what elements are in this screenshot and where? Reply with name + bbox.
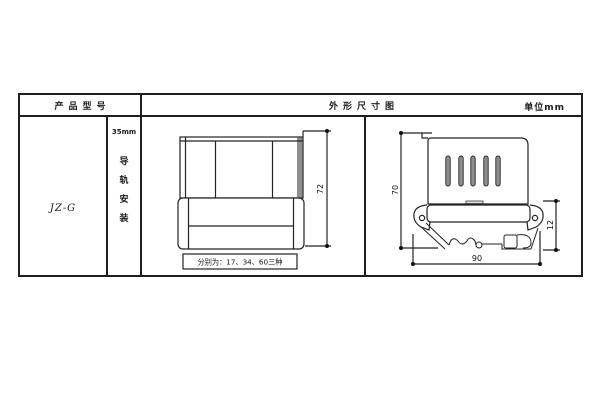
header-product-model-cell: 产品型号 (20, 95, 142, 117)
dim-dot (325, 129, 329, 133)
mounting-char: 导 (119, 153, 128, 172)
model-cell: JZ-G (20, 117, 108, 275)
dim-dot (554, 248, 558, 252)
mounting-char: 安 (119, 191, 128, 210)
header-drawing-title-cell: 外形尺寸图 单位mm (142, 95, 581, 117)
side-width-dim-label: 90 (472, 254, 482, 263)
front-width-note: 分别为：17、34、60三种 (198, 258, 283, 267)
product-model-label: 产品型号 (49, 99, 110, 112)
dim-dot (325, 244, 329, 248)
front-socket-base (178, 198, 304, 249)
side-height-dim-label: 70 (391, 185, 400, 195)
clip-screw-left (419, 215, 424, 220)
front-view-cell: 72 分别为：17、34、60三种 (142, 117, 366, 275)
dim-dot (399, 246, 403, 250)
side-bottom-notch (466, 201, 483, 204)
front-view-drawing: 72 分别为：17、34、60三种 (142, 117, 364, 275)
side-body (428, 138, 528, 204)
drawing-sheet: 产品型号 外形尺寸图 单位mm JZ-G 35mm 导 轨 安 装 (0, 0, 600, 400)
rail-width-label: 35mm (112, 128, 136, 136)
din-rail-profile (420, 223, 538, 249)
front-height-dim-label: 72 (316, 184, 325, 194)
dim-dot (411, 262, 415, 266)
front-upper-housing (180, 137, 303, 198)
clip-screw-right (532, 215, 537, 220)
side-clip-dim-label: 12 (546, 220, 555, 230)
drawing-title: 外形尺寸图 (324, 99, 399, 112)
dim-dot (538, 262, 542, 266)
spec-table: 产品型号 外形尺寸图 单位mm JZ-G 35mm 导 轨 安 装 (18, 93, 583, 277)
clip-bar (427, 205, 530, 222)
mounting-cell: 35mm 导 轨 安 装 (108, 117, 142, 275)
side-top-tab (422, 133, 432, 138)
side-view-drawing: 70 12 90 (366, 117, 579, 275)
mounting-char: 装 (119, 210, 128, 229)
side-view-cell: 70 12 90 (366, 117, 581, 275)
front-shaded-edge (297, 138, 303, 198)
dim-dot (399, 131, 403, 135)
model-name: JZ-G (50, 203, 76, 214)
dim-dot (554, 199, 558, 203)
unit-label: 单位mm (524, 100, 565, 113)
mounting-char: 轨 (119, 172, 128, 191)
